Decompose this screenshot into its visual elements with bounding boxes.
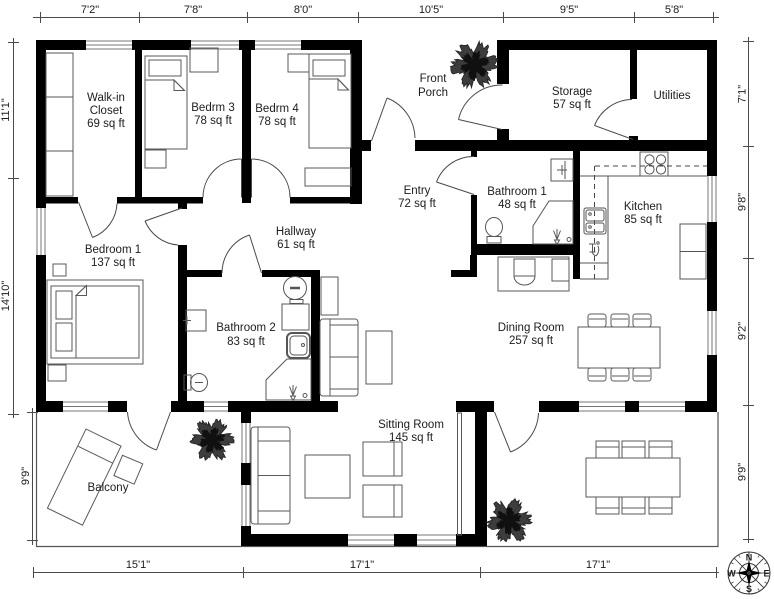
svg-text:Bathroom 2: Bathroom 2 [216,322,275,334]
svg-text:E: E [763,569,769,579]
svg-text:78 sq ft: 78 sq ft [194,115,233,127]
svg-text:14'10": 14'10" [0,281,12,312]
svg-text:9'5": 9'5" [560,4,578,16]
svg-text:57 sq ft: 57 sq ft [553,99,592,111]
svg-text:N: N [746,553,753,563]
svg-text:Utilities: Utilities [653,90,690,102]
svg-text:83 sq ft: 83 sq ft [227,336,266,348]
svg-text:17'1": 17'1" [586,559,610,571]
svg-text:Bedrm 4: Bedrm 4 [255,103,299,115]
svg-text:Bathroom 1: Bathroom 1 [487,186,546,198]
svg-text:69 sq ft: 69 sq ft [87,118,126,130]
svg-text:Front: Front [420,73,448,85]
svg-text:Kitchen: Kitchen [624,201,662,213]
svg-text:11'1": 11'1" [0,98,12,122]
svg-text:Walk-in: Walk-in [87,92,125,104]
svg-text:9'8": 9'8" [737,193,749,211]
svg-text:78 sq ft: 78 sq ft [258,116,297,128]
svg-text:85 sq ft: 85 sq ft [624,214,663,226]
svg-text:Porch: Porch [418,87,448,99]
svg-text:Hallway: Hallway [276,226,317,238]
svg-text:Balcony: Balcony [88,482,129,494]
svg-text:S: S [746,584,752,594]
svg-text:145 sq ft: 145 sq ft [389,432,434,444]
svg-text:Bedroom 1: Bedroom 1 [85,244,141,256]
svg-text:Entry: Entry [404,185,431,197]
svg-text:10'5": 10'5" [419,4,443,16]
svg-text:7'8": 7'8" [184,4,202,16]
svg-text:Dining Room: Dining Room [498,322,564,334]
svg-text:Closet: Closet [90,105,123,117]
svg-text:Sitting Room: Sitting Room [378,419,444,431]
svg-text:5'8": 5'8" [665,4,683,16]
svg-text:9'2": 9'2" [737,322,749,340]
svg-text:Storage: Storage [552,86,592,98]
svg-text:61 sq ft: 61 sq ft [277,239,316,251]
svg-text:72 sq ft: 72 sq ft [398,198,437,210]
svg-text:137 sq ft: 137 sq ft [91,257,136,269]
svg-text:48 sq ft: 48 sq ft [498,199,537,211]
svg-text:W: W [727,569,736,579]
svg-text:8'0": 8'0" [294,4,312,16]
svg-text:9'9": 9'9" [20,467,32,485]
svg-text:257 sq ft: 257 sq ft [509,335,554,347]
svg-text:7'1": 7'1" [737,85,749,103]
svg-text:7'2": 7'2" [81,4,99,16]
svg-text:17'1": 17'1" [350,559,374,571]
svg-text:Bedrm 3: Bedrm 3 [191,102,234,114]
svg-text:9'9": 9'9" [737,463,749,481]
svg-text:15'1": 15'1" [126,559,150,571]
